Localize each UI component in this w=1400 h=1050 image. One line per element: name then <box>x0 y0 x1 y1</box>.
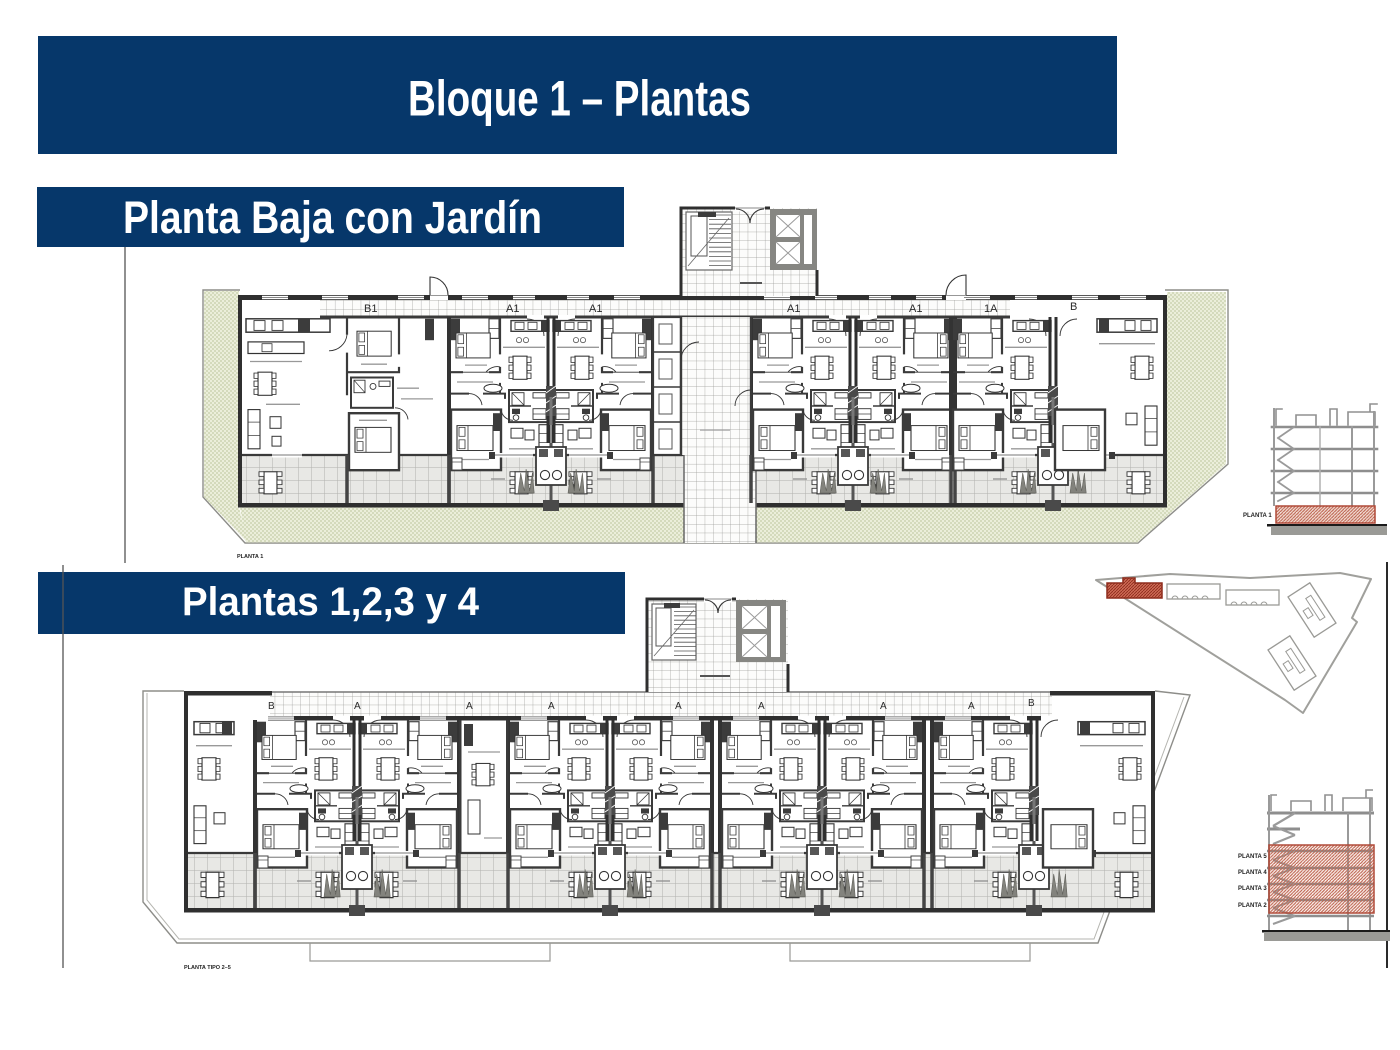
svg-text:Planta Baja con Jardín: Planta Baja con Jardín <box>123 192 542 243</box>
svg-text:A1: A1 <box>506 303 519 315</box>
svg-text:A: A <box>548 701 555 712</box>
svg-text:1A: 1A <box>984 303 998 315</box>
svg-text:B: B <box>1070 301 1077 313</box>
svg-text:Bloque 1 – Plantas: Bloque 1 – Plantas <box>408 71 751 127</box>
svg-text:A1: A1 <box>787 303 800 315</box>
svg-text:A: A <box>880 701 887 712</box>
svg-text:A: A <box>354 701 361 712</box>
svg-text:A1: A1 <box>589 303 602 315</box>
svg-text:PLANTA 5: PLANTA 5 <box>1238 854 1267 860</box>
svg-text:A: A <box>466 701 473 712</box>
svg-text:PLANTA 1: PLANTA 1 <box>1243 513 1272 519</box>
svg-text:PLANTA 1: PLANTA 1 <box>237 554 263 560</box>
svg-text:B: B <box>1028 698 1035 709</box>
svg-text:Plantas 1,2,3 y 4: Plantas 1,2,3 y 4 <box>182 580 480 624</box>
svg-text:B: B <box>268 701 275 712</box>
svg-text:A: A <box>758 701 765 712</box>
svg-text:A: A <box>675 701 682 712</box>
svg-text:A: A <box>968 701 975 712</box>
svg-text:PLANTA 3: PLANTA 3 <box>1238 886 1267 892</box>
svg-text:PLANTA TIPO 2–5: PLANTA TIPO 2–5 <box>184 965 231 971</box>
svg-text:B1: B1 <box>364 303 377 315</box>
svg-text:A1: A1 <box>909 303 922 315</box>
svg-text:PLANTA 2: PLANTA 2 <box>1238 903 1267 909</box>
svg-text:PLANTA 4: PLANTA 4 <box>1238 870 1267 876</box>
